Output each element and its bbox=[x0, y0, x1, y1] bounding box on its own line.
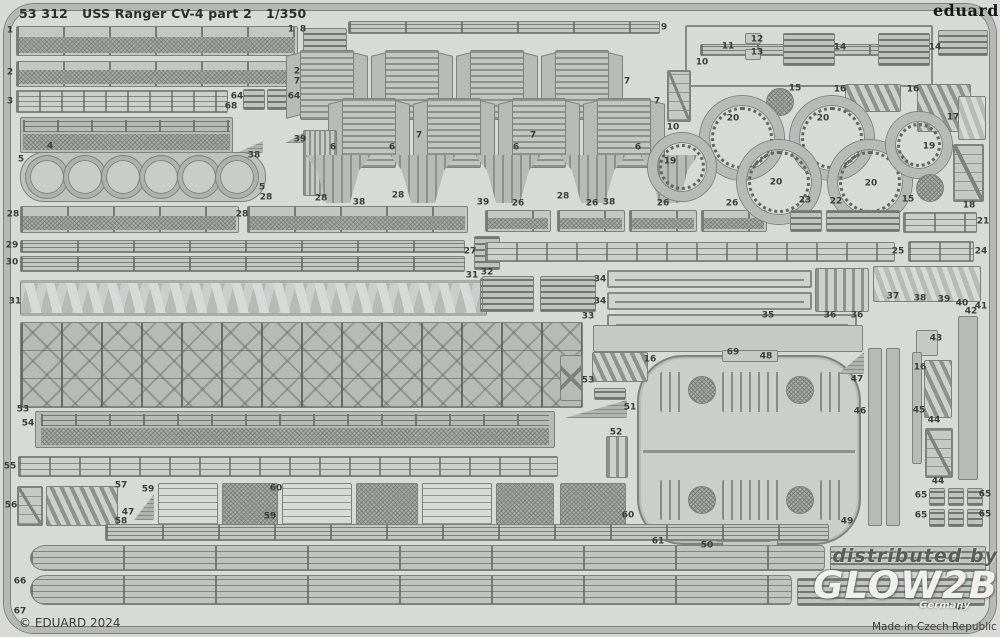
part-number-label: 64 bbox=[288, 93, 301, 102]
pe-part-ladder bbox=[17, 486, 43, 526]
pe-part-grate bbox=[783, 33, 835, 66]
part-number-label: 59 bbox=[142, 486, 155, 495]
part-number-label: 34 bbox=[594, 298, 607, 307]
part-number-label: 16 bbox=[644, 356, 657, 365]
part-number-label: 33 bbox=[582, 313, 595, 322]
pe-part-lines bbox=[105, 524, 829, 541]
pe-part-ladder bbox=[667, 70, 691, 122]
part-number-label: 44 bbox=[932, 478, 945, 487]
pe-part-slots bbox=[722, 480, 782, 520]
part-number-label: 35 bbox=[762, 312, 775, 321]
pe-part-grate bbox=[929, 509, 945, 527]
pe-part-disch bbox=[688, 486, 716, 514]
part-number-label: 43 bbox=[930, 335, 943, 344]
pe-part-grate bbox=[948, 488, 964, 506]
part-number-label: 21 bbox=[977, 218, 990, 227]
part-number-label: 1 bbox=[288, 26, 294, 35]
pe-part-ladder bbox=[925, 428, 953, 478]
part-number-label: 36 bbox=[824, 312, 837, 321]
part-number-label: 28 bbox=[315, 195, 328, 204]
part-number-label: 6 bbox=[389, 144, 395, 153]
pe-part-railing bbox=[485, 242, 895, 262]
part-number-label: 10 bbox=[667, 124, 680, 133]
pe-part-vbar bbox=[868, 348, 882, 526]
pe-part-grate bbox=[938, 30, 988, 56]
pe-part-vbar bbox=[958, 316, 978, 480]
part-number-label: 28 bbox=[7, 211, 20, 220]
part-number-label: 7 bbox=[654, 98, 660, 107]
pe-part-bigring bbox=[26, 156, 68, 198]
pe-part-railmesh bbox=[16, 26, 298, 56]
pe-part-bigring bbox=[140, 156, 182, 198]
pe-part-grate bbox=[594, 388, 626, 400]
part-number-label: 6 bbox=[635, 144, 641, 153]
part-number-label: 32 bbox=[481, 269, 494, 278]
pe-part-ring bbox=[886, 112, 952, 178]
pe-part-zigzag bbox=[958, 96, 986, 140]
pe-part-grate bbox=[878, 33, 930, 66]
pe-part-disch bbox=[688, 376, 716, 404]
part-number-label: 36 bbox=[851, 312, 864, 321]
part-number-label: 15 bbox=[789, 85, 802, 94]
part-number-label: 28 bbox=[236, 211, 249, 220]
part-number-label: 16 bbox=[907, 86, 920, 95]
pe-part-grate bbox=[826, 210, 900, 232]
part-number-label: 52 bbox=[610, 429, 623, 438]
pe-part-platform bbox=[422, 483, 492, 525]
pe-part-vbar bbox=[886, 348, 900, 526]
pe-part-bigring bbox=[102, 156, 144, 198]
part-number-label: 24 bbox=[975, 248, 988, 257]
part-number-label: 37 bbox=[887, 293, 900, 302]
part-number-label: 65 bbox=[979, 511, 992, 520]
part-number-label: 13 bbox=[751, 49, 764, 58]
pe-part-platformmesh bbox=[496, 483, 554, 525]
part-number-label: 66 bbox=[14, 578, 27, 587]
part-number-label: 25 bbox=[892, 248, 905, 257]
pe-part-platform bbox=[282, 483, 352, 525]
pe-part-grate bbox=[929, 488, 945, 506]
pe-part-ladder bbox=[953, 144, 984, 202]
part-number-label: 65 bbox=[979, 491, 992, 500]
part-number-label: 29 bbox=[6, 242, 19, 251]
pe-part-comb bbox=[924, 360, 952, 418]
pe-part-disch bbox=[786, 376, 814, 404]
part-number-label: 1 bbox=[7, 27, 13, 36]
part-number-label: 60 bbox=[622, 512, 635, 521]
part-number-label: 46 bbox=[854, 408, 867, 417]
part-number-label: 28 bbox=[557, 193, 570, 202]
pe-part-railmesh bbox=[557, 210, 625, 232]
pe-part-bigring bbox=[64, 156, 106, 198]
part-number-label: 26 bbox=[512, 200, 525, 209]
part-number-label: 7 bbox=[294, 78, 300, 87]
pe-part-slots bbox=[722, 372, 782, 412]
pe-part-slots bbox=[660, 372, 686, 412]
part-number-label: 9 bbox=[661, 24, 667, 33]
pe-part-lines bbox=[20, 256, 465, 272]
part-number-label: 6 bbox=[330, 144, 336, 153]
part-number-label: 39 bbox=[477, 199, 490, 208]
part-number-label: 26 bbox=[726, 200, 739, 209]
part-number-label: 2 bbox=[294, 68, 300, 77]
part-number-label: 61 bbox=[652, 538, 665, 547]
pe-part-railing2 bbox=[16, 90, 228, 113]
part-number-label: 7 bbox=[530, 132, 536, 141]
copyright-text: © EDUARD 2024 bbox=[19, 616, 121, 630]
part-number-label: 34 bbox=[594, 276, 607, 285]
part-number-label: 5 bbox=[259, 184, 265, 193]
part-number-label: 20 bbox=[727, 115, 740, 124]
part-number-label: 69 bbox=[727, 349, 740, 358]
part-number-label: 16 bbox=[834, 86, 847, 95]
pe-part-truss bbox=[20, 280, 487, 316]
part-number-label: 68 bbox=[225, 103, 238, 112]
pe-part-railmesh bbox=[629, 210, 697, 232]
part-number-label: 65 bbox=[915, 512, 928, 521]
part-number-label: 10 bbox=[696, 59, 709, 68]
part-number-label: 65 bbox=[915, 492, 928, 501]
part-number-label: 31 bbox=[9, 298, 22, 307]
part-number-label: 57 bbox=[115, 482, 128, 491]
part-number-label: 26 bbox=[657, 200, 670, 209]
part-number-label: 42 bbox=[965, 308, 978, 317]
part-number-label: 28 bbox=[260, 194, 273, 203]
catalog-number: 53 312 bbox=[19, 6, 68, 21]
part-number-label: 44 bbox=[928, 417, 941, 426]
pe-part-slots bbox=[660, 480, 686, 520]
part-number-label: 17 bbox=[947, 114, 960, 123]
part-number-label: 26 bbox=[586, 200, 599, 209]
pe-part-meshrail bbox=[35, 411, 555, 448]
photo-etch-sheet-scan: 1182236464684383955282828282828262626266… bbox=[0, 0, 1000, 637]
part-number-label: 28 bbox=[392, 192, 405, 201]
pe-part-slots bbox=[820, 372, 846, 412]
part-number-label: 19 bbox=[664, 158, 677, 167]
pe-part-railmesh bbox=[20, 206, 239, 233]
part-number-label: 27 bbox=[464, 248, 477, 257]
pe-part-bigring bbox=[178, 156, 220, 198]
pe-part-railing bbox=[903, 212, 977, 233]
sheet-title: USS Ranger CV-4 part 2 bbox=[82, 6, 252, 21]
part-number-label: 6 bbox=[513, 144, 519, 153]
part-number-label: 15 bbox=[902, 196, 915, 205]
part-number-label: 18 bbox=[963, 202, 976, 211]
part-number-label: 4 bbox=[47, 143, 53, 152]
pe-part-railmesh bbox=[247, 206, 468, 233]
part-number-label: 14 bbox=[834, 44, 847, 53]
part-number-label: 7 bbox=[416, 132, 422, 141]
pe-part-disch bbox=[786, 486, 814, 514]
pe-part-vslats bbox=[815, 268, 869, 312]
pe-part-grate bbox=[948, 509, 964, 527]
part-number-label: 55 bbox=[4, 463, 17, 472]
sheet-header: 53 312USS Ranger CV-4 part 21/350 bbox=[19, 6, 320, 21]
part-number-label: 20 bbox=[817, 115, 830, 124]
part-number-label: 38 bbox=[603, 199, 616, 208]
part-number-label: 22 bbox=[830, 198, 843, 207]
pe-fret-sheet: 1182236464684383955282828282828262626266… bbox=[0, 0, 1000, 637]
pe-part-xpiece bbox=[560, 355, 582, 401]
pe-part-grate bbox=[482, 276, 534, 312]
pe-part-railmesh bbox=[16, 61, 294, 87]
pe-part-bigring bbox=[216, 156, 258, 198]
part-number-label: 64 bbox=[231, 93, 244, 102]
scale-label: 1/350 bbox=[266, 6, 306, 21]
part-number-label: 59 bbox=[264, 513, 277, 522]
pe-part-ring bbox=[648, 133, 716, 201]
part-number-label: 30 bbox=[6, 259, 19, 268]
part-number-label: 50 bbox=[701, 542, 714, 551]
part-number-label: 53 bbox=[17, 406, 30, 415]
pe-part-bracket bbox=[560, 155, 626, 203]
pe-part-oframe bbox=[607, 292, 812, 310]
pe-part-vslats bbox=[606, 436, 628, 478]
part-number-label: 14 bbox=[929, 44, 942, 53]
part-number-label: 40 bbox=[955, 604, 968, 613]
pe-part-railmesh bbox=[485, 210, 551, 232]
pe-part-platformmesh bbox=[560, 483, 626, 529]
pe-part-slots bbox=[820, 480, 846, 520]
part-number-label: 8 bbox=[300, 26, 306, 35]
part-number-label: 53 bbox=[582, 377, 595, 386]
part-number-label: 38 bbox=[353, 199, 366, 208]
pe-part-platform bbox=[158, 483, 218, 525]
pe-part-platformmesh bbox=[356, 483, 418, 525]
part-number-label: 16 bbox=[914, 364, 927, 373]
part-number-label: 39 bbox=[294, 136, 307, 145]
pe-part-railing bbox=[908, 241, 974, 262]
part-number-label: 38 bbox=[248, 152, 261, 161]
pe-part-lines bbox=[348, 21, 660, 34]
part-number-label: 3 bbox=[7, 98, 13, 107]
part-number-label: 20 bbox=[865, 180, 878, 189]
part-number-label: 31 bbox=[466, 272, 479, 281]
part-number-label: 38 bbox=[914, 295, 927, 304]
part-number-label: 19 bbox=[923, 143, 936, 152]
pe-part-bracket bbox=[475, 155, 541, 203]
made-in-text: Made in Czech Republic bbox=[872, 621, 997, 633]
part-number-label: 23 bbox=[799, 197, 812, 206]
part-number-label: 54 bbox=[22, 420, 35, 429]
part-number-label: 47 bbox=[851, 376, 864, 385]
part-number-label: 20 bbox=[770, 179, 783, 188]
part-number-label: 48 bbox=[760, 353, 773, 362]
part-number-label: 56 bbox=[5, 502, 18, 511]
pe-part-comb bbox=[46, 486, 118, 526]
pe-part-grate bbox=[830, 546, 986, 572]
pe-part-comb bbox=[592, 352, 648, 382]
pe-part-girder bbox=[20, 322, 583, 408]
part-number-label: 39 bbox=[938, 296, 951, 305]
pe-part-grate bbox=[540, 276, 596, 312]
part-number-label: 49 bbox=[841, 518, 854, 527]
part-number-label: 60 bbox=[270, 485, 283, 494]
pe-part-disch bbox=[916, 174, 944, 202]
part-number-label: 7 bbox=[624, 78, 630, 87]
part-number-label: 11 bbox=[722, 43, 735, 52]
part-number-label: 2 bbox=[7, 69, 13, 78]
part-number-label: 45 bbox=[913, 407, 926, 416]
pe-part-grate bbox=[243, 89, 265, 110]
part-number-label: 51 bbox=[624, 404, 637, 413]
eduard-logo: eduard bbox=[933, 1, 999, 20]
pe-part-railing bbox=[18, 456, 558, 477]
part-number-label: 58 bbox=[115, 518, 128, 527]
pe-part-striprd bbox=[30, 575, 792, 605]
part-number-label: 12 bbox=[751, 36, 764, 45]
part-number-label: 5 bbox=[18, 156, 24, 165]
pe-part-oframe bbox=[607, 270, 812, 288]
pe-part-lines bbox=[20, 240, 465, 253]
pe-part-wedge bbox=[134, 494, 154, 520]
pe-part-grate bbox=[790, 210, 822, 232]
